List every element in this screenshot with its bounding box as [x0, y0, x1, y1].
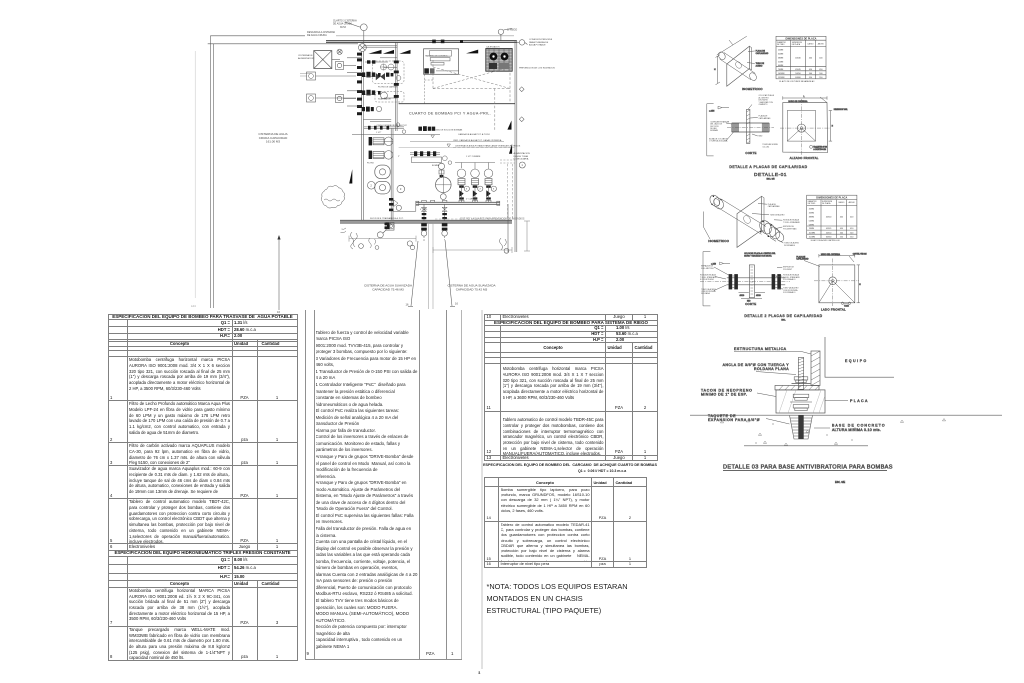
- svg-text:CAPILARIDAD: CAPILARIDAD: [756, 52, 769, 55]
- svg-text:CORTE: CORTE: [745, 302, 756, 306]
- svg-text:DE PLACA: DE PLACA: [792, 43, 801, 46]
- svg-text:a=MIN: a=MIN: [709, 111, 715, 113]
- svg-text:400: 400: [850, 216, 853, 218]
- svg-text:DIMENSIONES DE PLACA: DIMENSIONES DE PLACA: [816, 197, 847, 200]
- svg-text:25MM: 25MM: [809, 208, 815, 210]
- svg-text:POLIDRET MAS: POLIDRET MAS: [783, 227, 797, 230]
- svg-text:64MM: 64MM: [809, 224, 815, 226]
- svg-text:MURO Y MACIZAR CON MORT.: MURO Y MACIZAR CON MORT.: [744, 255, 772, 258]
- svg-text:450: 450: [819, 69, 822, 71]
- svg-text:H: H: [859, 284, 861, 286]
- svg-text:DETALLE 2 PLACAS DE CAPILARID: DETALLE 2 PLACAS DE CAPILARIDAD: [744, 314, 822, 318]
- svg-text:FULL-METODO: FULL-METODO: [701, 268, 714, 270]
- svg-text:ESTRUCTURA METALICA: ESTRUCTURA METALICA: [734, 347, 787, 351]
- svg-text:DE TUBO: DE TUBO: [808, 203, 816, 205]
- svg-text:EQUIPO: EQUIPO: [845, 359, 868, 363]
- svg-text:ANCHO: ANCHO: [818, 42, 825, 45]
- svg-text:45X45: 45X45: [826, 228, 831, 230]
- svg-text:CORTE: CORTE: [745, 151, 756, 155]
- svg-text:51MM: 51MM: [809, 220, 815, 222]
- svg-text:A CADA 200 MM: A CADA 200 MM: [813, 148, 826, 151]
- svg-text:DE TUBO: DE TUBO: [777, 44, 785, 46]
- svg-text:SOLDADA: SOLDADA: [701, 292, 710, 295]
- svg-text:450: 450: [850, 228, 853, 230]
- svg-text:40X40: 40X40: [795, 57, 800, 59]
- svg-text:CAPITEL VER 1M: CAPITEL VER 1M: [853, 252, 867, 255]
- svg-text:50X50: 50X50: [826, 232, 831, 234]
- svg-text:500: 500: [819, 73, 822, 75]
- svg-text:DE PLACA: DE PLACA: [822, 202, 831, 205]
- svg-text:550: 550: [809, 77, 812, 79]
- svg-text:PLACA: PLACA: [850, 399, 869, 403]
- svg-text:76MM: 76MM: [778, 69, 784, 71]
- svg-text:50X50: 50X50: [795, 73, 800, 75]
- svg-text:500: 500: [840, 232, 843, 234]
- svg-text:LADO FRONTAL: LADO FRONTAL: [821, 307, 846, 311]
- svg-text:500: 500: [850, 232, 853, 234]
- svg-text:550: 550: [840, 236, 843, 238]
- svg-text:NBD: NBD: [759, 135, 763, 137]
- svg-text:102MM: 102MM: [778, 73, 785, 75]
- svg-text:32MM: 32MM: [778, 53, 784, 55]
- svg-text:60X60: 60X60: [795, 77, 800, 79]
- svg-text:CAPILARIDAD: CAPILARIDAD: [768, 205, 781, 208]
- svg-text:500: 500: [809, 73, 812, 75]
- svg-text:BOMBAS: BOMBAS: [710, 129, 718, 132]
- svg-text:ESC. S/E: ESC. S/E: [835, 481, 846, 484]
- svg-text:S/ FORBEADO: S/ FORBEADO: [783, 278, 796, 281]
- svg-text:ESC. S/E: ESC. S/E: [767, 179, 776, 181]
- svg-text:400: 400: [840, 216, 843, 218]
- svg-text:152MM: 152MM: [778, 77, 785, 79]
- svg-text:40X40: 40X40: [740, 295, 745, 297]
- svg-text:LARGO: LARGO: [838, 201, 845, 204]
- svg-text:H: H: [714, 69, 716, 71]
- svg-text:152MM: 152MM: [809, 236, 816, 238]
- svg-text:76MM: 76MM: [809, 228, 815, 230]
- svg-text:CAPILARIDAD: CAPILARIDAD: [759, 117, 772, 120]
- svg-text:MURO DEL CISTERNA: MURO DEL CISTERNA: [821, 253, 841, 256]
- svg-text:CAPILARIDAD: CAPILARIDAD: [796, 258, 809, 261]
- svg-text:45X45: 45X45: [795, 69, 800, 71]
- svg-text:INOXIDABLE: INOXIDABLE: [784, 244, 796, 247]
- svg-text:TUBO DE ACERO: TUBO DE ACERO: [770, 213, 785, 216]
- svg-text:EL ALTO DE ACERO CAPITEUL-98: EL ALTO DE ACERO CAPITEUL-98: [811, 239, 840, 242]
- svg-text:64MM: 64MM: [778, 65, 784, 67]
- svg-text:EL ALTO DE LOS TUBOS SE HARA D: EL ALTO DE LOS TUBOS SE HARA DE AC.: [779, 80, 815, 83]
- svg-text:32MM: 32MM: [809, 212, 815, 214]
- svg-text:S/ POLIETILENO: S/ POLIETILENO: [700, 279, 715, 281]
- svg-text:450: 450: [840, 228, 843, 230]
- svg-text:ESC.: ESC.: [781, 320, 786, 322]
- svg-text:DETALLE 03 PARA BASE ANTIVIBR: DETALLE 03 PARA BASE ANTIVIBRATORIA PARA…: [723, 464, 893, 470]
- svg-text:DIMENSIONES DE PLACA: DIMENSIONES DE PLACA: [786, 37, 817, 40]
- svg-text:ROLDANA PLANA: ROLDANA PLANA: [754, 367, 789, 371]
- svg-text:ISOMETRICO: ISOMETRICO: [708, 239, 729, 243]
- svg-text:MURO DE CISTERNA: MURO DE CISTERNA: [788, 100, 808, 103]
- svg-text:H: H: [832, 126, 834, 128]
- svg-text:550: 550: [850, 236, 853, 238]
- svg-text:O TUERCA SOLDADA: O TUERCA SOLDADA: [709, 140, 728, 143]
- svg-text:T/ FULL-STANDARD: T/ FULL-STANDARD: [783, 221, 801, 224]
- svg-text:51MM: 51MM: [778, 61, 784, 63]
- svg-text:102MM: 102MM: [809, 232, 816, 234]
- svg-text:DIMENSION VAR.: DIMENSION VAR.: [834, 108, 848, 111]
- svg-text:1: 1: [479, 671, 481, 675]
- svg-text:ANCHO: ANCHO: [849, 201, 856, 204]
- svg-text:S/ FORBEADO: S/ FORBEADO: [783, 291, 796, 294]
- svg-text:400: 400: [809, 57, 812, 59]
- svg-text:ISOMETRICO: ISOMETRICO: [742, 87, 763, 91]
- svg-text:DETALLE-01: DETALLE-01: [754, 172, 787, 178]
- svg-text:25MM: 25MM: [778, 49, 784, 51]
- svg-text:38MM: 38MM: [778, 57, 784, 59]
- svg-text:ALZADO FRONTAL: ALZADO FRONTAL: [790, 156, 819, 160]
- svg-text:EXPANSION PARA 3/8"Ø: EXPANSION PARA 3/8"Ø: [708, 418, 760, 422]
- svg-text:450: 450: [809, 69, 812, 71]
- svg-text:60X60: 60X60: [826, 236, 831, 238]
- svg-text:40X40: 40X40: [756, 295, 761, 297]
- svg-text:CD 2-84: CD 2-84: [762, 146, 769, 148]
- svg-text:MINIMO DE 1" DE ESP.: MINIMO DE 1" DE ESP.: [701, 393, 747, 397]
- svg-text:40X40: 40X40: [826, 216, 831, 218]
- svg-text:550: 550: [819, 77, 822, 79]
- svg-text:CEMENTO: CEMENTO: [759, 104, 769, 106]
- svg-text:LARGO: LARGO: [808, 42, 815, 45]
- svg-text:ACERO: ACERO: [756, 65, 763, 68]
- svg-text:DETALLE A PLACAS DE CAPILARIDA: DETALLE A PLACAS DE CAPILARIDAD: [729, 165, 807, 169]
- svg-text:POLIDRET: POLIDRET: [783, 269, 793, 271]
- svg-text:38MM: 38MM: [809, 216, 815, 218]
- svg-text:400: 400: [819, 57, 822, 59]
